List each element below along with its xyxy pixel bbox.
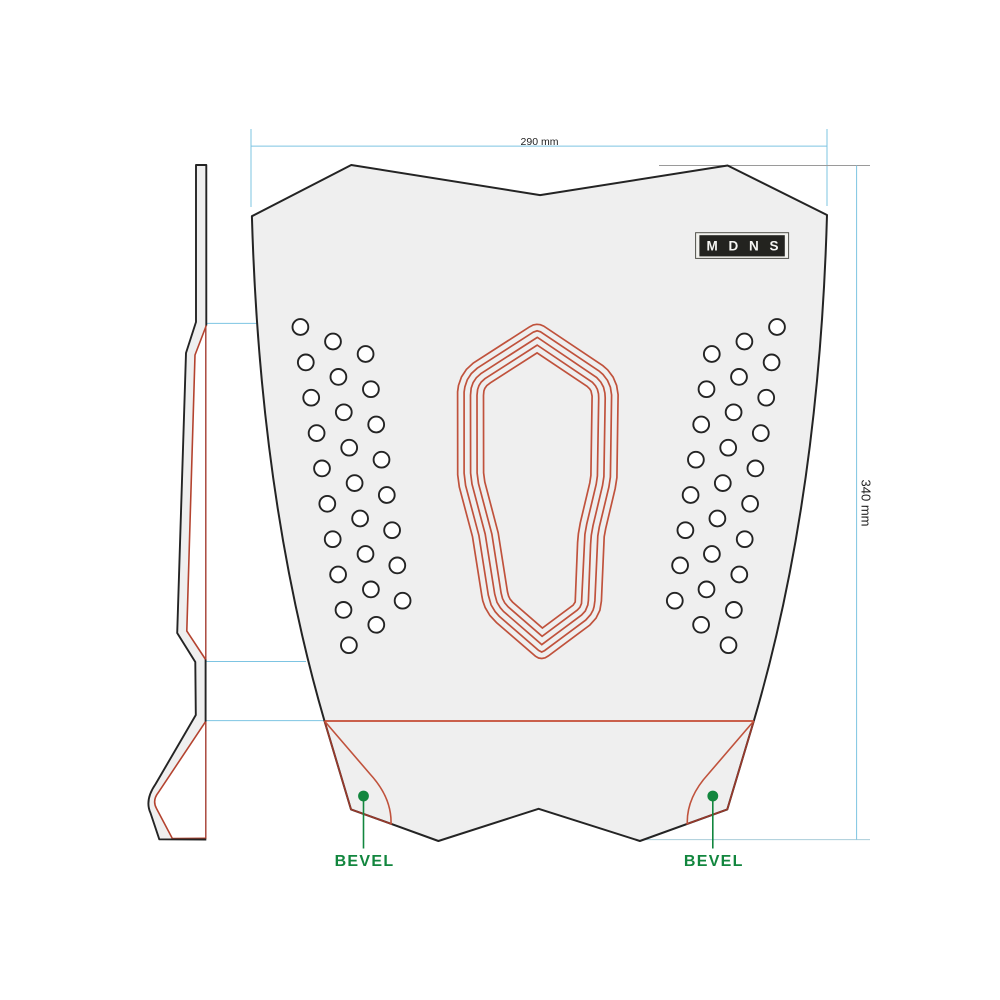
svg-text:BEVEL: BEVEL — [335, 853, 395, 870]
svg-text:BEVEL: BEVEL — [684, 853, 744, 870]
svg-text:340 mm: 340 mm — [859, 480, 874, 527]
svg-text:290 mm: 290 mm — [521, 136, 559, 148]
